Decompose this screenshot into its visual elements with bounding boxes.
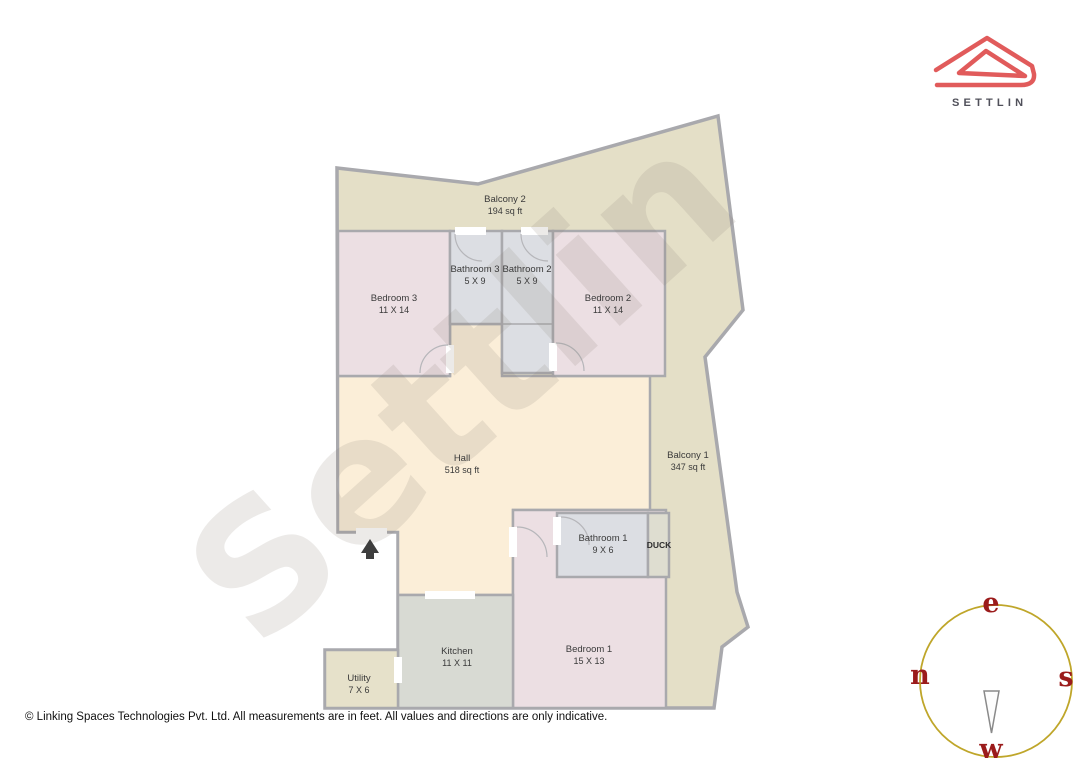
- compass-needle-icon: [984, 691, 999, 733]
- compass-east: e: [982, 588, 999, 619]
- dims-kitchen: 11 X 11: [442, 658, 472, 668]
- compass-north: n: [910, 660, 930, 691]
- label-balcony-1: Balcony 1: [667, 450, 709, 461]
- label-bathroom-3: Bathroom 3: [450, 264, 499, 275]
- label-bedroom-1: Bedroom 1: [566, 644, 612, 655]
- label-bedroom-2: Bedroom 2: [585, 293, 631, 304]
- label-bathroom-1: Bathroom 1: [578, 533, 627, 544]
- compass-letters: e n s w: [910, 588, 1073, 764]
- copyright-disclaimer: © Linking Spaces Technologies Pvt. Ltd. …: [25, 711, 607, 723]
- dims-bedroom-2: 11 X 14: [593, 305, 623, 315]
- door-gap-kitchen: [425, 591, 475, 599]
- compass: e n s w: [910, 588, 1073, 764]
- dims-bathroom-2: 5 X 9: [516, 276, 537, 286]
- label-duck: DUCK: [647, 540, 672, 550]
- dims-balcony-2: 194 sq ft: [488, 206, 523, 216]
- settlin-wordmark: SETTLIN: [952, 97, 1072, 109]
- compass-south: s: [1058, 662, 1073, 693]
- dims-bedroom-3: 11 X 14: [379, 305, 409, 315]
- dims-bathroom-3: 5 X 9: [464, 276, 485, 286]
- label-bathroom-2: Bathroom 2: [502, 264, 551, 275]
- compass-west: w: [978, 734, 1003, 764]
- dims-bedroom-1: 15 X 13: [573, 656, 604, 666]
- settlin-logo-icon: [936, 38, 1034, 85]
- dims-bathroom-1: 9 X 6: [592, 545, 613, 555]
- label-kitchen: Kitchen: [441, 646, 473, 657]
- label-hall: Hall: [454, 453, 470, 464]
- dims-balcony-1: 347 sq ft: [671, 462, 706, 472]
- label-utility: Utility: [347, 673, 370, 684]
- door-gap-bathroom-1: [553, 517, 561, 545]
- floorplan-page: Settlin Balcony 2 194 sq ft Bedroom 3 11…: [0, 0, 1080, 764]
- door-gap-bedroom-1: [509, 527, 517, 557]
- label-bedroom-3: Bedroom 3: [371, 293, 417, 304]
- floorplan-canvas: Settlin Balcony 2 194 sq ft Bedroom 3 11…: [0, 0, 1080, 764]
- dims-utility: 7 X 6: [348, 685, 369, 695]
- door-gap-utility: [394, 657, 402, 683]
- label-balcony-2: Balcony 2: [484, 194, 526, 205]
- dims-hall: 518 sq ft: [445, 465, 480, 475]
